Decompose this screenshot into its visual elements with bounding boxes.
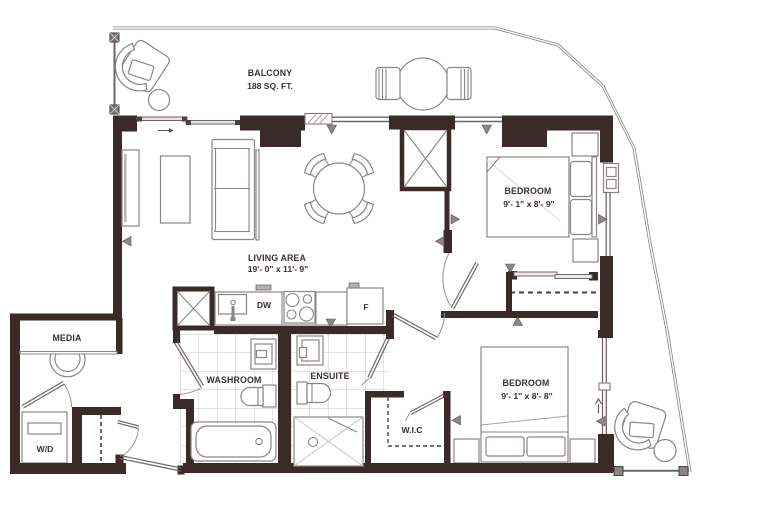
svg-text:DW: DW (257, 300, 272, 310)
svg-text:BALCONY: BALCONY (248, 68, 293, 78)
svg-text:W/D: W/D (37, 444, 54, 454)
svg-text:F: F (363, 302, 368, 312)
svg-text:188 SQ. FT.: 188 SQ. FT. (247, 81, 293, 91)
svg-text:W.I.C: W.I.C (401, 425, 422, 435)
svg-text:19'- 0" x 11'- 9": 19'- 0" x 11'- 9" (248, 264, 309, 274)
svg-text:9'- 1" x 8'- 8": 9'- 1" x 8'- 8" (501, 391, 552, 401)
svg-text:9'- 1" x 8'- 9": 9'- 1" x 8'- 9" (503, 199, 554, 209)
svg-text:BEDROOM: BEDROOM (503, 378, 550, 388)
svg-text:ENSUITE: ENSUITE (310, 371, 349, 381)
svg-text:WASHROOM: WASHROOM (207, 375, 262, 385)
svg-text:BEDROOM: BEDROOM (505, 186, 552, 196)
svg-text:LIVING AREA: LIVING AREA (248, 253, 307, 263)
svg-text:MEDIA: MEDIA (52, 333, 82, 343)
